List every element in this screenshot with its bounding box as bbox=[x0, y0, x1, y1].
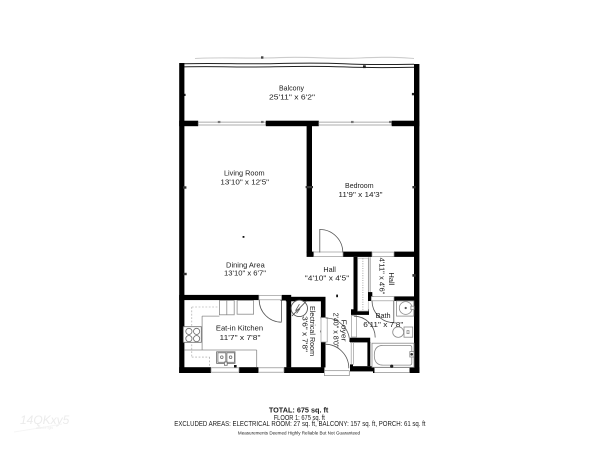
svg-text:14QKxy5: 14QKxy5 bbox=[20, 413, 70, 427]
svg-text:Bath: Bath bbox=[376, 311, 391, 320]
svg-text:4'11" x 4'6": 4'11" x 4'6" bbox=[378, 258, 385, 295]
svg-text:25'11" x 6'2": 25'11" x 6'2" bbox=[269, 93, 315, 102]
svg-text:abcd e fghi: abcd e fghi bbox=[36, 426, 53, 430]
svg-text:13'10" x 6'7": 13'10" x 6'7" bbox=[224, 269, 266, 278]
svg-text:Living Room: Living Room bbox=[224, 169, 265, 178]
svg-text:Eat-in Kitchen: Eat-in Kitchen bbox=[216, 324, 263, 333]
svg-text:13'10" x 12'5": 13'10" x 12'5" bbox=[220, 178, 269, 187]
svg-text:Bedroom: Bedroom bbox=[345, 181, 374, 190]
svg-text:2'40" x 8'0": 2'40" x 8'0" bbox=[331, 313, 338, 348]
svg-text:11'9" x 14'3": 11'9" x 14'3" bbox=[338, 190, 383, 199]
svg-text:6'11" x 7'8": 6'11" x 7'8" bbox=[363, 320, 403, 329]
svg-text:"4'10" x 4'5": "4'10" x 4'5" bbox=[305, 274, 350, 283]
svg-text:Balcony: Balcony bbox=[279, 83, 304, 92]
svg-text:Hall: Hall bbox=[387, 272, 394, 285]
svg-text:EXCLUDED AREAS: ELECTRICAL ROO: EXCLUDED AREAS: ELECTRICAL ROOM: 27 sq. … bbox=[174, 419, 425, 428]
svg-text:Electrical Room: Electrical Room bbox=[308, 306, 315, 356]
svg-text:Measurements Deemed Highly Rel: Measurements Deemed Highly Reliable But … bbox=[238, 430, 361, 436]
svg-text:3'6" x 7'8": 3'6" x 7'8" bbox=[301, 316, 308, 352]
svg-text:11'7" x 7'8": 11'7" x 7'8" bbox=[220, 333, 261, 342]
svg-text:Foyer: Foyer bbox=[340, 319, 347, 342]
